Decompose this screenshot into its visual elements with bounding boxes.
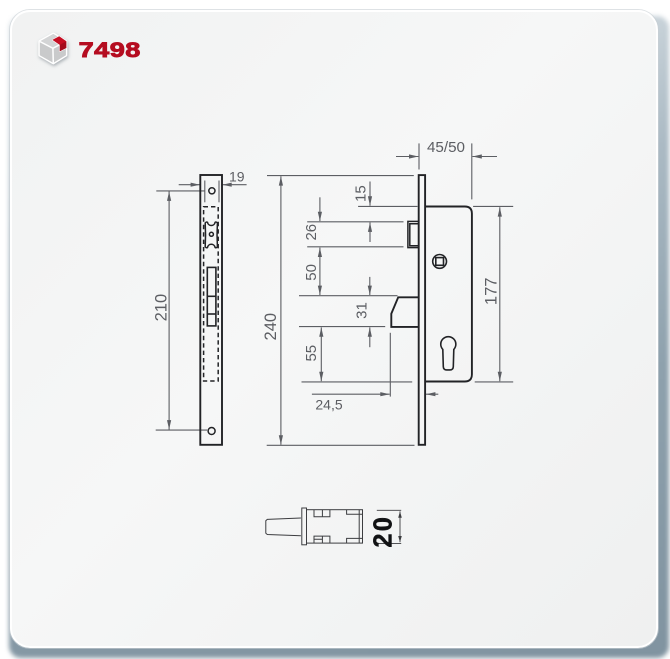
svg-text:45/50: 45/50 bbox=[427, 139, 465, 156]
svg-text:177: 177 bbox=[482, 278, 500, 306]
svg-text:15: 15 bbox=[352, 185, 369, 202]
svg-text:19: 19 bbox=[229, 169, 245, 185]
svg-text:24,5: 24,5 bbox=[315, 396, 342, 412]
svg-text:31: 31 bbox=[354, 302, 371, 319]
svg-text:50: 50 bbox=[303, 264, 320, 281]
svg-text:240: 240 bbox=[262, 313, 280, 341]
svg-text:20: 20 bbox=[369, 515, 397, 548]
svg-text:26: 26 bbox=[303, 224, 320, 241]
svg-text:55: 55 bbox=[303, 345, 320, 362]
svg-text:7498: 7498 bbox=[79, 39, 141, 63]
svg-text:210: 210 bbox=[152, 294, 170, 322]
